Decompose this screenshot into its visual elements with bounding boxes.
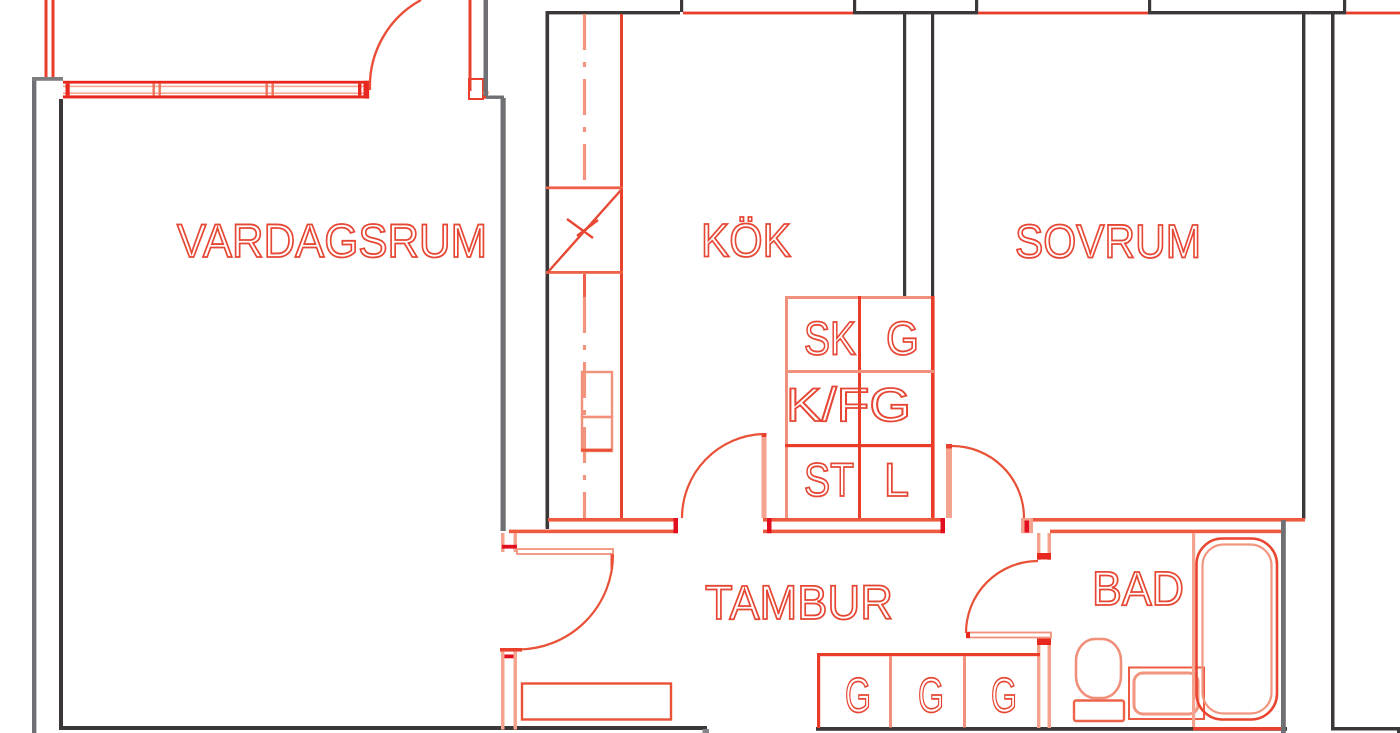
svg-text:L: L xyxy=(884,453,909,506)
svg-text:VARDAGSRUM: VARDAGSRUM xyxy=(177,214,487,267)
svg-text:ST: ST xyxy=(804,453,854,506)
svg-text:SK: SK xyxy=(804,312,856,365)
svg-text:KÖK: KÖK xyxy=(701,214,791,267)
svg-text:G: G xyxy=(845,669,871,723)
svg-text:K/FG: K/FG xyxy=(786,378,911,431)
svg-text:G: G xyxy=(886,312,919,365)
svg-text:SOVRUM: SOVRUM xyxy=(1015,215,1201,268)
svg-text:TAMBUR: TAMBUR xyxy=(705,577,893,630)
svg-text:G: G xyxy=(918,669,944,723)
svg-text:G: G xyxy=(991,669,1017,723)
svg-text:BAD: BAD xyxy=(1092,563,1184,616)
